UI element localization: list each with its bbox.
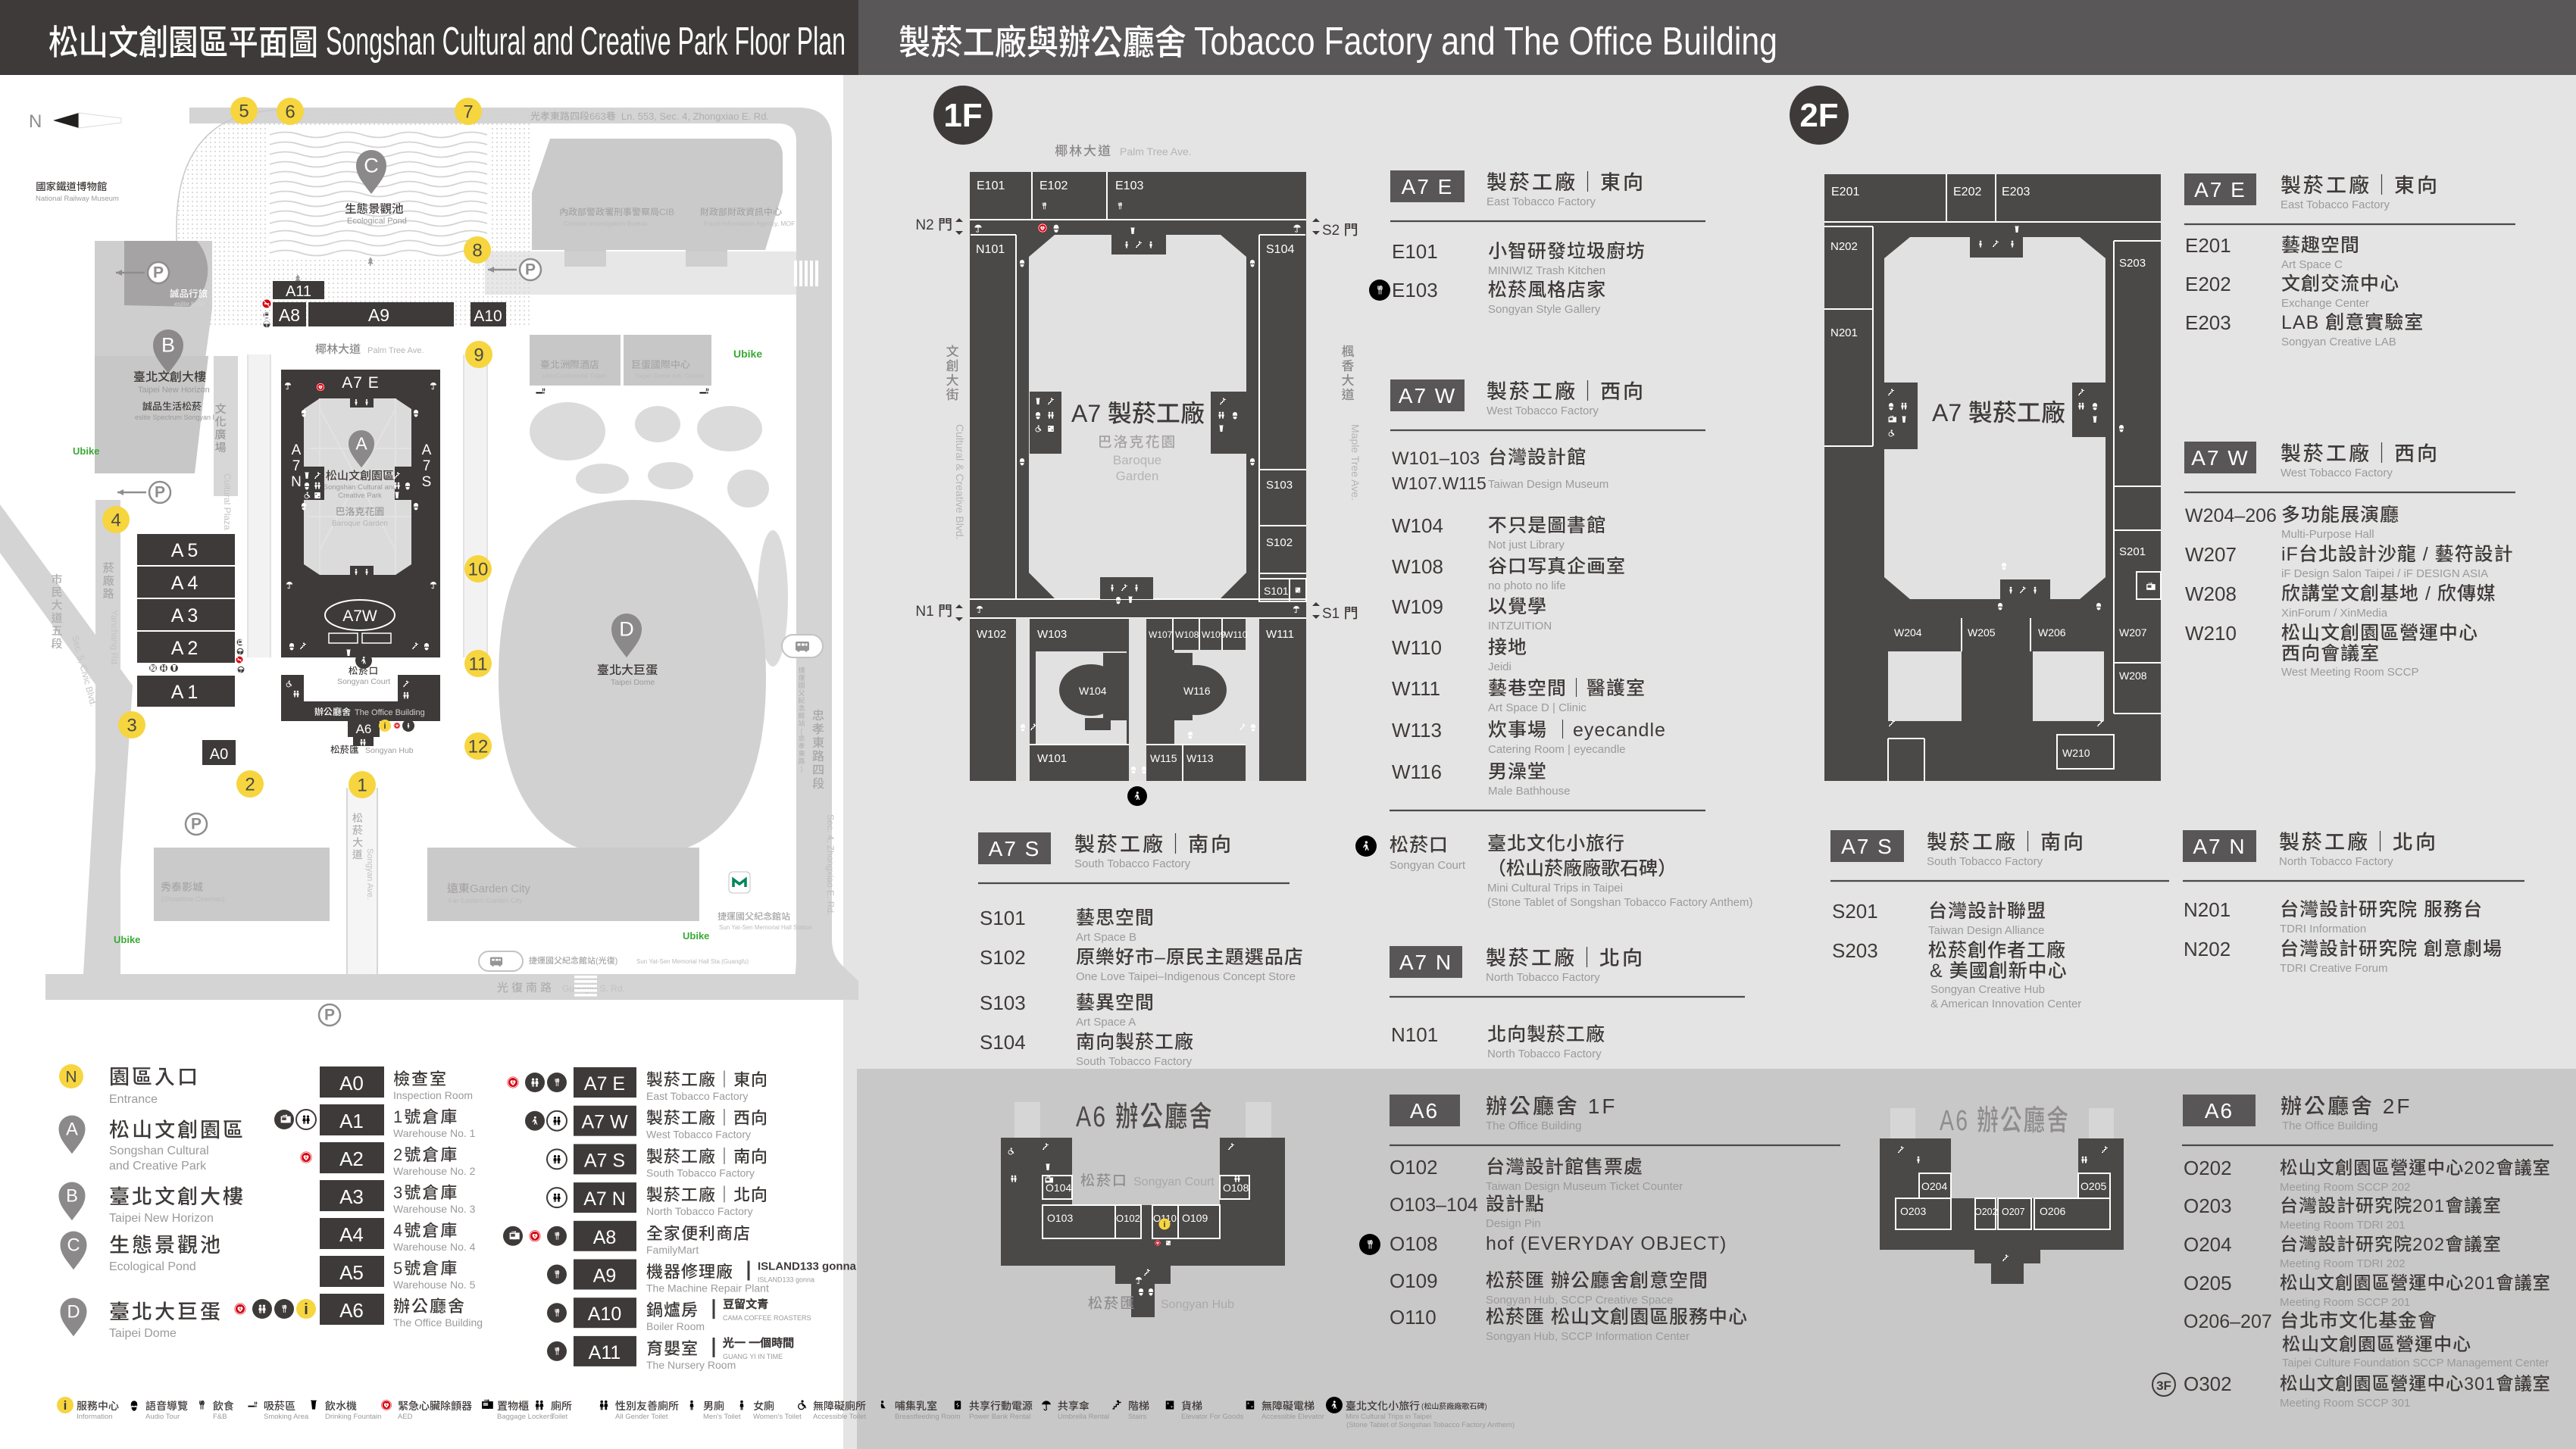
svg-text:檢查室: 檢查室 [393, 1070, 448, 1088]
svg-text:秀泰影城: 秀泰影城 [161, 881, 203, 893]
svg-text:松山文創園區營運中心301會議室: 松山文創園區營運中心301會議室 [2280, 1374, 2551, 1394]
svg-text:1: 1 [357, 775, 367, 795]
svg-text:O104: O104 [1046, 1182, 1071, 1194]
svg-text:共享行動電源: 共享行動電源 [969, 1400, 1033, 1412]
svg-text:TDRI Information: TDRI Information [2280, 923, 2366, 935]
svg-text:製菸工廠｜南向: 製菸工廠｜南向 [646, 1147, 768, 1166]
svg-text:P: P [153, 264, 164, 282]
svg-text:Art Space D | Clinic: Art Space D | Clinic [1488, 701, 1587, 714]
svg-text:i: i [64, 1398, 67, 1413]
svg-text:The Office Building: The Office Building [393, 1316, 483, 1329]
svg-text:松山文創園區營運中心201會議室: 松山文創園區營運中心201會議室 [2280, 1273, 2551, 1294]
svg-text:E201: E201 [2185, 234, 2231, 257]
svg-text:i: i [383, 722, 386, 731]
svg-text:生態景觀池: 生態景觀池 [345, 202, 404, 216]
svg-text:Art Space A: Art Space A [1076, 1016, 1136, 1029]
svg-text:South Tobacco Factory: South Tobacco Factory [1074, 857, 1191, 870]
svg-text:五: 五 [51, 625, 62, 638]
svg-text:Mini Cultural Trips in Taipei: Mini Cultural Trips in Taipei [1346, 1413, 1431, 1421]
svg-text:Sun Yat-Sen Memorial Hall Sta.: Sun Yat-Sen Memorial Hall Sta.(Guangfu) [636, 958, 749, 965]
svg-text:A7 S: A7 S [989, 837, 1041, 860]
svg-text:One Love Taipei–Indigenous Con: One Love Taipei–Indigenous Concept Store [1076, 970, 1296, 983]
svg-text:四: 四 [812, 764, 824, 777]
svg-text:W107.W115: W107.W115 [1392, 473, 1487, 493]
svg-text:i: i [304, 1301, 308, 1318]
svg-text:W108: W108 [1175, 629, 1199, 640]
svg-text:A9: A9 [593, 1266, 617, 1287]
svg-text:Inspection Room: Inspection Room [393, 1089, 473, 1101]
svg-text:接地: 接地 [1488, 637, 1527, 658]
svg-text:館: 館 [798, 711, 805, 720]
svg-text:The Nursery Room: The Nursery Room [646, 1359, 736, 1371]
svg-text:West Meeting Room SCCP: West Meeting Room SCCP [2281, 666, 2418, 679]
svg-text:Stairs: Stairs [1128, 1413, 1147, 1421]
svg-text:椰林大道: 椰林大道 [315, 343, 361, 356]
svg-text:W115: W115 [1150, 752, 1177, 764]
svg-text:S101: S101 [980, 907, 1026, 929]
svg-text:菸: 菸 [102, 562, 114, 575]
svg-text:W104: W104 [1079, 685, 1107, 697]
svg-text:A7 W: A7 W [2191, 446, 2249, 470]
svg-text:A: A [355, 433, 367, 453]
svg-text:East Tobacco Factory: East Tobacco Factory [1487, 195, 1596, 208]
svg-text:製菸工廠｜北向: 製菸工廠｜北向 [1486, 947, 1645, 970]
svg-text:P: P [155, 484, 165, 501]
svg-text:A2: A2 [171, 638, 202, 659]
svg-text:Songyan Court: Songyan Court [1133, 1176, 1215, 1188]
svg-text:製菸工廠｜東向: 製菸工廠｜東向 [646, 1070, 768, 1089]
svg-text:6: 6 [285, 101, 295, 122]
svg-text:Multi-Purpose Hall: Multi-Purpose Hall [2281, 528, 2374, 541]
svg-text:P: P [324, 1007, 335, 1024]
svg-text:Meeting Room SCCP 202: Meeting Room SCCP 202 [2280, 1181, 2410, 1194]
svg-text:Tobacco Factory and The Office: Tobacco Factory and The Office Building [1194, 20, 1777, 64]
svg-text:市: 市 [51, 573, 62, 586]
svg-text:站: 站 [798, 720, 805, 727]
svg-text:松菸口: 松菸口 [349, 666, 380, 676]
svg-text:小智研發垃圾廚坊: 小智研發垃圾廚坊 [1488, 241, 1646, 262]
svg-text:大: 大 [51, 599, 62, 612]
svg-text:Songyan Style Gallery: Songyan Style Gallery [1488, 303, 1601, 316]
svg-text:Songyan Creative Hub: Songyan Creative Hub [1930, 983, 2045, 996]
svg-text:S103: S103 [980, 992, 1026, 1014]
svg-text:Palm Tree Ave.: Palm Tree Ave. [367, 346, 424, 355]
svg-text:Taipei New Horizon: Taipei New Horizon [109, 1212, 214, 1225]
svg-text:XinForum / XinMedia: XinForum / XinMedia [2281, 607, 2388, 620]
svg-text:A0: A0 [339, 1072, 364, 1095]
svg-text:O103: O103 [1047, 1212, 1073, 1224]
svg-text:Warehouse No. 1: Warehouse No. 1 [393, 1127, 476, 1139]
svg-text:INTZUITION: INTZUITION [1488, 620, 1552, 632]
svg-text:臺北文創大樓: 臺北文創大樓 [133, 370, 206, 384]
svg-text:松山文創園區平面圖: 松山文創園區平面圖 [48, 23, 318, 62]
svg-text:製菸工廠與辦公廳舍: 製菸工廠與辦公廳舍 [899, 23, 1186, 62]
svg-text:A10: A10 [474, 308, 502, 325]
svg-text:Taipei New Horizon: Taipei New Horizon [138, 386, 210, 395]
svg-text:N1 門: N1 門 [915, 604, 952, 620]
svg-text:臺北文創大樓: 臺北文創大樓 [109, 1185, 245, 1208]
svg-text:O102: O102 [1116, 1213, 1140, 1224]
svg-text:貨梯: 貨梯 [1181, 1400, 1202, 1412]
svg-text:(: ( [801, 727, 803, 735]
svg-text:O206: O206 [2040, 1205, 2065, 1217]
svg-text:Mini Cultural Trips in Taipei: Mini Cultural Trips in Taipei [1487, 882, 1623, 895]
svg-text:South Tobacco Factory: South Tobacco Factory [1076, 1055, 1193, 1068]
svg-text:W110: W110 [1224, 629, 1248, 640]
svg-text:鍋爐房: 鍋爐房 [646, 1301, 699, 1319]
svg-text:A6 辦公廳舍: A6 辦公廳舍 [1940, 1105, 2070, 1137]
svg-text:Taipei Dome: Taipei Dome [109, 1327, 177, 1340]
svg-text:O103–104: O103–104 [1390, 1194, 1478, 1216]
svg-text:no photo no life: no photo no life [1488, 579, 1566, 592]
svg-text:A9: A9 [368, 305, 389, 325]
svg-text:FamilyMart: FamilyMart [646, 1244, 699, 1256]
svg-text:欣講堂文創基地 / 欣傳媒: 欣講堂文創基地 / 欣傳媒 [2281, 583, 2496, 604]
svg-text:East Tobacco Factory: East Tobacco Factory [646, 1090, 748, 1102]
svg-text:藝趣空間: 藝趣空間 [2281, 235, 2360, 256]
svg-text:A6: A6 [339, 1299, 364, 1322]
svg-text:Taiwan Design Alliance: Taiwan Design Alliance [1928, 924, 2044, 937]
svg-text:Cultural & Creative Blvd.: Cultural & Creative Blvd. [954, 424, 966, 540]
svg-text:& 美國創新中心: & 美國創新中心 [1930, 960, 2068, 982]
svg-text:South Tobacco Factory: South Tobacco Factory [1927, 855, 2043, 868]
svg-text:O205: O205 [2184, 1272, 2232, 1294]
svg-text:12: 12 [468, 736, 489, 757]
svg-text:辦公廳舍 2F: 辦公廳舍 2F [2281, 1095, 2412, 1118]
svg-text:InterContinental Taipei: InterContinental Taipei [542, 372, 607, 379]
svg-text:無障礙廁所: 無障礙廁所 [813, 1400, 866, 1412]
svg-text:3號倉庫: 3號倉庫 [393, 1183, 458, 1202]
svg-text:Audio Tour: Audio Tour [145, 1413, 180, 1421]
svg-text:Far Eastern Garden City: Far Eastern Garden City [449, 897, 523, 904]
svg-text:光孝東路四段663巷 Ln. 553, Sec. 4, Z: 光孝東路四段663巷 Ln. 553, Sec. 4, Zhongxiao E.… [530, 111, 769, 122]
svg-text:Taipei Dome Intl. Center: Taipei Dome Intl. Center [635, 372, 704, 379]
svg-text:全家便利商店: 全家便利商店 [646, 1224, 751, 1243]
svg-text:Accessible Toilet: Accessible Toilet [813, 1413, 866, 1421]
svg-text:5號倉庫: 5號倉庫 [393, 1259, 458, 1278]
svg-text:內政部警政署刑事警察局CIB: 內政部警政署刑事警察局CIB [559, 207, 674, 217]
svg-text:文: 文 [946, 345, 959, 359]
svg-text:Ecological Pond: Ecological Pond [347, 217, 407, 226]
svg-text:D: D [67, 1303, 80, 1323]
svg-text:松菸口: 松菸口 [1390, 835, 1449, 856]
svg-text:(Showtime Cinemas): (Showtime Cinemas) [161, 895, 225, 903]
svg-text:段: 段 [812, 777, 824, 791]
svg-text:National Railway Museum: National Railway Museum [36, 195, 119, 203]
svg-text:Entrance: Entrance [109, 1093, 158, 1106]
svg-text:街: 街 [946, 388, 959, 402]
svg-text:S: S [422, 474, 432, 490]
svg-text:2號倉庫: 2號倉庫 [393, 1145, 458, 1164]
svg-text:N: N [291, 474, 302, 490]
svg-text:A6 辦公廳舍: A6 辦公廳舍 [1076, 1101, 1214, 1133]
svg-text:W113: W113 [1186, 752, 1214, 764]
svg-text:Taipei Dome: Taipei Dome [611, 678, 655, 687]
svg-text:A7W: A7W [342, 607, 377, 625]
svg-text:i: i [1163, 1220, 1165, 1229]
svg-text:3F: 3F [2156, 1379, 2171, 1393]
svg-text:O202: O202 [2184, 1157, 2232, 1179]
svg-text:E103: E103 [1392, 279, 1438, 301]
svg-text:): ) [801, 765, 803, 773]
svg-text:Songshan Cultural: Songshan Cultural [109, 1145, 209, 1157]
svg-text:Umbrella Rental: Umbrella Rental [1058, 1413, 1109, 1421]
svg-text:N101: N101 [976, 243, 1005, 256]
svg-text:E102: E102 [1039, 180, 1068, 192]
svg-text:松菸口: 松菸口 [1080, 1173, 1128, 1189]
svg-text:A11: A11 [589, 1342, 621, 1363]
svg-text:O110: O110 [1390, 1306, 1436, 1329]
svg-text:A7 製菸工廠: A7 製菸工廠 [1071, 400, 1205, 427]
svg-text:7: 7 [463, 101, 473, 122]
svg-text:West Tobacco Factory: West Tobacco Factory [646, 1129, 751, 1141]
svg-text:A6: A6 [2205, 1099, 2234, 1123]
svg-text:B: B [66, 1187, 78, 1207]
svg-text:W206: W206 [2038, 626, 2066, 639]
svg-text:松菸匯 辦公廳舍創意空間: 松菸匯 辦公廳舍創意空間 [1486, 1270, 1708, 1291]
svg-text:台北市文化基金會: 台北市文化基金會 [2280, 1310, 2437, 1332]
svg-text:東: 東 [812, 736, 824, 750]
svg-text:W210: W210 [2185, 622, 2237, 645]
svg-text:A6: A6 [356, 722, 372, 736]
svg-text:忠: 忠 [812, 709, 824, 723]
svg-text:松山文創園區營運中心: 松山文創園區營運中心 [2282, 1335, 2471, 1355]
svg-text:E202: E202 [1953, 186, 1981, 198]
svg-text:Yanchang Rd.: Yanchang Rd. [109, 610, 120, 667]
svg-text:E203: E203 [2185, 311, 2231, 334]
svg-text:A: A [422, 442, 432, 458]
svg-text:E103: E103 [1115, 180, 1143, 192]
svg-text:服務中心: 服務中心 [77, 1400, 119, 1412]
svg-text:段: 段 [51, 638, 62, 651]
svg-text:Songyan Creative LAB: Songyan Creative LAB [2281, 336, 2396, 348]
svg-text:W207: W207 [2185, 543, 2237, 566]
svg-text:A7 E: A7 E [2194, 178, 2246, 201]
svg-text:松: 松 [352, 812, 363, 824]
svg-text:Maple Tree Ave.: Maple Tree Ave. [1349, 424, 1361, 501]
svg-text:N2 門: N2 門 [915, 217, 952, 233]
svg-text:製菸工廠｜東向: 製菸工廠｜東向 [1487, 171, 1646, 194]
svg-text:A7 N: A7 N [2193, 835, 2246, 858]
svg-text:W204–206: W204–206 [2185, 505, 2277, 526]
svg-text:巴洛克花園: 巴洛克花園 [1097, 434, 1177, 451]
svg-text:Meeting Room TDRI 202: Meeting Room TDRI 202 [2280, 1257, 2406, 1270]
svg-text:Cultural Plaza: Cultural Plaza [222, 473, 233, 530]
svg-text:Men's Toilet: Men's Toilet [703, 1413, 741, 1421]
svg-text:菸: 菸 [352, 824, 363, 836]
svg-text:North Tobacco Factory: North Tobacco Factory [1486, 971, 1600, 984]
svg-text:A8: A8 [279, 305, 300, 325]
svg-text:吸菸區: 吸菸區 [264, 1400, 295, 1412]
svg-text:Songshan Cultural and: Songshan Cultural and [324, 483, 397, 492]
svg-text:Songyan Hub, SCCP Information: Songyan Hub, SCCP Information Center [1486, 1330, 1690, 1343]
svg-text:GUANG YI IN TIME: GUANG YI IN TIME [723, 1353, 783, 1360]
svg-text:創: 創 [946, 359, 959, 373]
svg-text:藝異空間: 藝異空間 [1076, 992, 1155, 1013]
svg-text:O202: O202 [1974, 1207, 1998, 1217]
svg-text:育嬰室: 育嬰室 [646, 1339, 699, 1358]
svg-text:S2 門: S2 門 [1322, 223, 1358, 239]
svg-text:TDRI Creative Forum: TDRI Creative Forum [2280, 962, 2388, 975]
svg-text:A7 E: A7 E [584, 1073, 625, 1095]
svg-text:Elevator For Goods: Elevator For Goods [1181, 1413, 1244, 1421]
svg-text:男廁: 男廁 [703, 1400, 724, 1412]
svg-text:園區入口: 園區入口 [109, 1066, 200, 1088]
svg-text:辦公廳舍: 辦公廳舍 [393, 1297, 466, 1316]
svg-text:Ubike: Ubike [73, 445, 99, 457]
svg-text:1號倉庫: 1號倉庫 [393, 1107, 458, 1126]
svg-text:3: 3 [127, 715, 136, 735]
svg-text:道: 道 [352, 848, 363, 860]
svg-text:Male Bathhouse: Male Bathhouse [1488, 785, 1570, 798]
svg-text:O204: O204 [2184, 1233, 2232, 1256]
svg-text:北向製菸工廠: 北向製菸工廠 [1487, 1024, 1605, 1045]
svg-text:A1: A1 [339, 1110, 364, 1132]
svg-text:A2: A2 [339, 1148, 364, 1170]
svg-text:谷口写真企画室: 谷口写真企画室 [1488, 556, 1626, 577]
svg-text:P: P [191, 816, 202, 833]
svg-text:廣: 廣 [214, 429, 226, 442]
svg-text:A10: A10 [588, 1304, 621, 1325]
svg-text:楓: 楓 [1342, 345, 1355, 359]
svg-text:O206–207: O206–207 [2184, 1311, 2272, 1332]
svg-text:誠品生活松菸: 誠品生活松菸 [142, 401, 202, 412]
svg-text:N202: N202 [2184, 938, 2231, 960]
svg-text:廠: 廠 [102, 575, 114, 588]
svg-text:不只是圖書館: 不只是圖書館 [1488, 515, 1606, 536]
svg-text:（松山菸廠廠歌石碑）: （松山菸廠廠歌石碑） [1487, 858, 1677, 879]
svg-text:性別友善廁所: 性別友善廁所 [615, 1400, 679, 1412]
svg-text:S101: S101 [1264, 585, 1289, 597]
svg-text:North Tobacco Factory: North Tobacco Factory [1487, 1048, 1602, 1060]
svg-text:Catering Room | eyecandle: Catering Room | eyecandle [1488, 743, 1626, 756]
svg-text:E201: E201 [1831, 186, 1859, 198]
svg-text:Criminal Investigation Bureau: Criminal Investigation Bureau [564, 220, 648, 227]
svg-text:W204: W204 [1894, 626, 1922, 639]
svg-text:光復南路: 光復南路 [497, 982, 555, 995]
svg-text:O205: O205 [2080, 1180, 2106, 1192]
svg-text:台灣設計研究院 服務台: 台灣設計研究院 服務台 [2280, 899, 2483, 920]
svg-text:國家鐵道博物館: 國家鐵道博物館 [36, 181, 108, 192]
svg-text:孝: 孝 [812, 723, 824, 736]
svg-text:道: 道 [51, 612, 62, 625]
svg-text:遠東Garden City: 遠東Garden City [447, 882, 531, 895]
svg-text:Meeting Room SCCP 301: Meeting Room SCCP 301 [2280, 1397, 2410, 1410]
svg-text:O204: O204 [1921, 1180, 1947, 1192]
svg-text:A3: A3 [339, 1185, 364, 1208]
svg-text:臺北大巨蛋: 臺北大巨蛋 [109, 1301, 223, 1323]
svg-text:Sec. 4, Zhongxiao E. Rd.: Sec. 4, Zhongxiao E. Rd. [825, 814, 836, 915]
svg-text:Ubike: Ubike [683, 930, 709, 942]
svg-text:A8: A8 [593, 1227, 617, 1248]
svg-text:8: 8 [472, 240, 482, 261]
svg-text:Songyan Hub, SCCP Creative Spa: Songyan Hub, SCCP Creative Space [1486, 1294, 1673, 1307]
svg-text:A7 S: A7 S [1841, 835, 1893, 858]
svg-text:台灣設計館售票處: 台灣設計館售票處 [1486, 1157, 1643, 1178]
svg-text:原樂好市–原民主題選品店: 原樂好市–原民主題選品店 [1076, 947, 1304, 968]
svg-text:S104: S104 [1266, 243, 1294, 256]
svg-text:S201: S201 [2119, 545, 2146, 558]
svg-text:製菸工廠｜南向: 製菸工廠｜南向 [1927, 831, 2086, 854]
svg-text:W101: W101 [1037, 752, 1067, 765]
svg-text:台灣設計研究院 創意劇場: 台灣設計研究院 創意劇場 [2280, 938, 2503, 960]
svg-text:hof (EVERYDAY OBJECT): hof (EVERYDAY OBJECT) [1486, 1233, 1727, 1254]
svg-text:S201: S201 [1832, 900, 1878, 923]
svg-text:eslite Spectrum Songyan Mall: eslite Spectrum Songyan Mall [135, 414, 225, 421]
svg-text:西向會議室: 西向會議室 [2281, 643, 2380, 664]
svg-text:A7 E: A7 E [342, 374, 380, 392]
svg-text:O109: O109 [1182, 1212, 1208, 1224]
svg-text:語音導覽: 語音導覽 [145, 1400, 188, 1412]
svg-text:捷運國父紀念館站(光復): 捷運國父紀念館站(光復) [529, 956, 617, 966]
svg-text:Not just Library: Not just Library [1488, 539, 1565, 551]
svg-text:North Tobacco Factory: North Tobacco Factory [2279, 855, 2393, 868]
svg-text:S103: S103 [1266, 479, 1293, 492]
svg-text:Ubike: Ubike [114, 934, 140, 945]
svg-text:A5: A5 [339, 1261, 364, 1284]
svg-text:S104: S104 [980, 1031, 1026, 1054]
svg-text:Baggage Lockers: Baggage Lockers [497, 1413, 553, 1421]
svg-text:A5: A5 [171, 540, 202, 561]
svg-text:運: 運 [797, 674, 805, 682]
svg-text:F&B: F&B [213, 1413, 227, 1421]
svg-text:Ecological Pond: Ecological Pond [109, 1260, 196, 1273]
svg-text:台灣設計館: 台灣設計館 [1488, 447, 1587, 468]
svg-text:(Stone Tablet of Songshan Toba: (Stone Tablet of Songshan Tobacco Factor… [1346, 1421, 1515, 1429]
svg-text:A7 W: A7 W [1399, 384, 1456, 408]
svg-text:A: A [66, 1120, 78, 1140]
svg-text:國: 國 [798, 682, 805, 689]
svg-text:飲水機: 飲水機 [325, 1400, 357, 1412]
svg-text:廁所: 廁所 [551, 1400, 572, 1412]
svg-text:2F: 2F [1799, 97, 1838, 134]
svg-text:W101–103: W101–103 [1392, 448, 1480, 469]
svg-text:念: 念 [797, 704, 805, 712]
svg-text:W116: W116 [1183, 685, 1211, 697]
svg-text:香: 香 [1342, 359, 1355, 373]
svg-text:Sun Yat-Sen Memorial Hall Stat: Sun Yat-Sen Memorial Hall Station [719, 924, 812, 931]
svg-text:9: 9 [474, 345, 483, 365]
svg-text:階梯: 階梯 [1128, 1400, 1149, 1412]
svg-text:CAMA COFFEE ROASTERS: CAMA COFFEE ROASTERS [723, 1314, 811, 1322]
svg-text:松山文創園區營運中心: 松山文創園區營運中心 [2281, 623, 2478, 644]
svg-text:捷運國父紀念館站: 捷運國父紀念館站 [717, 911, 790, 922]
svg-text:捷: 捷 [798, 667, 805, 674]
svg-text:O203: O203 [2184, 1194, 2232, 1217]
svg-text:民: 民 [51, 586, 62, 599]
svg-text:共享傘: 共享傘 [1058, 1400, 1089, 1412]
svg-text:East Tobacco Factory: East Tobacco Factory [2281, 198, 2390, 211]
svg-text:生態景觀池: 生態景觀池 [109, 1234, 223, 1257]
svg-text:O102: O102 [1390, 1156, 1438, 1179]
svg-text:機器修理廠: 機器修理廠 [646, 1263, 733, 1282]
svg-text:W208: W208 [2119, 670, 2147, 682]
svg-text:2: 2 [245, 774, 255, 795]
svg-text:A7 E: A7 E [1402, 175, 1454, 198]
svg-text:Art Space B: Art Space B [1076, 931, 1136, 944]
svg-text:Design Pin: Design Pin [1486, 1217, 1541, 1230]
svg-text:Taiwan Design Museum Ticket Co: Taiwan Design Museum Ticket Counter [1486, 1180, 1683, 1193]
svg-text:大: 大 [1342, 373, 1355, 388]
svg-text:Meeting Room SCCP 201: Meeting Room SCCP 201 [2280, 1296, 2410, 1309]
svg-text:& American Innovation Center: & American Innovation Center [1930, 998, 2081, 1010]
svg-text:製菸工廠｜東向: 製菸工廠｜東向 [2281, 174, 2440, 197]
svg-text:Meeting Room TDRI 201: Meeting Room TDRI 201 [2280, 1219, 2406, 1232]
svg-text:A7 W: A7 W [581, 1112, 628, 1133]
svg-text:O109: O109 [1390, 1269, 1438, 1292]
svg-text:財政部財政資訊中心: 財政部財政資訊中心 [700, 207, 783, 217]
svg-text:MINIWIZ Trash Kitchen: MINIWIZ Trash Kitchen [1488, 264, 1605, 277]
